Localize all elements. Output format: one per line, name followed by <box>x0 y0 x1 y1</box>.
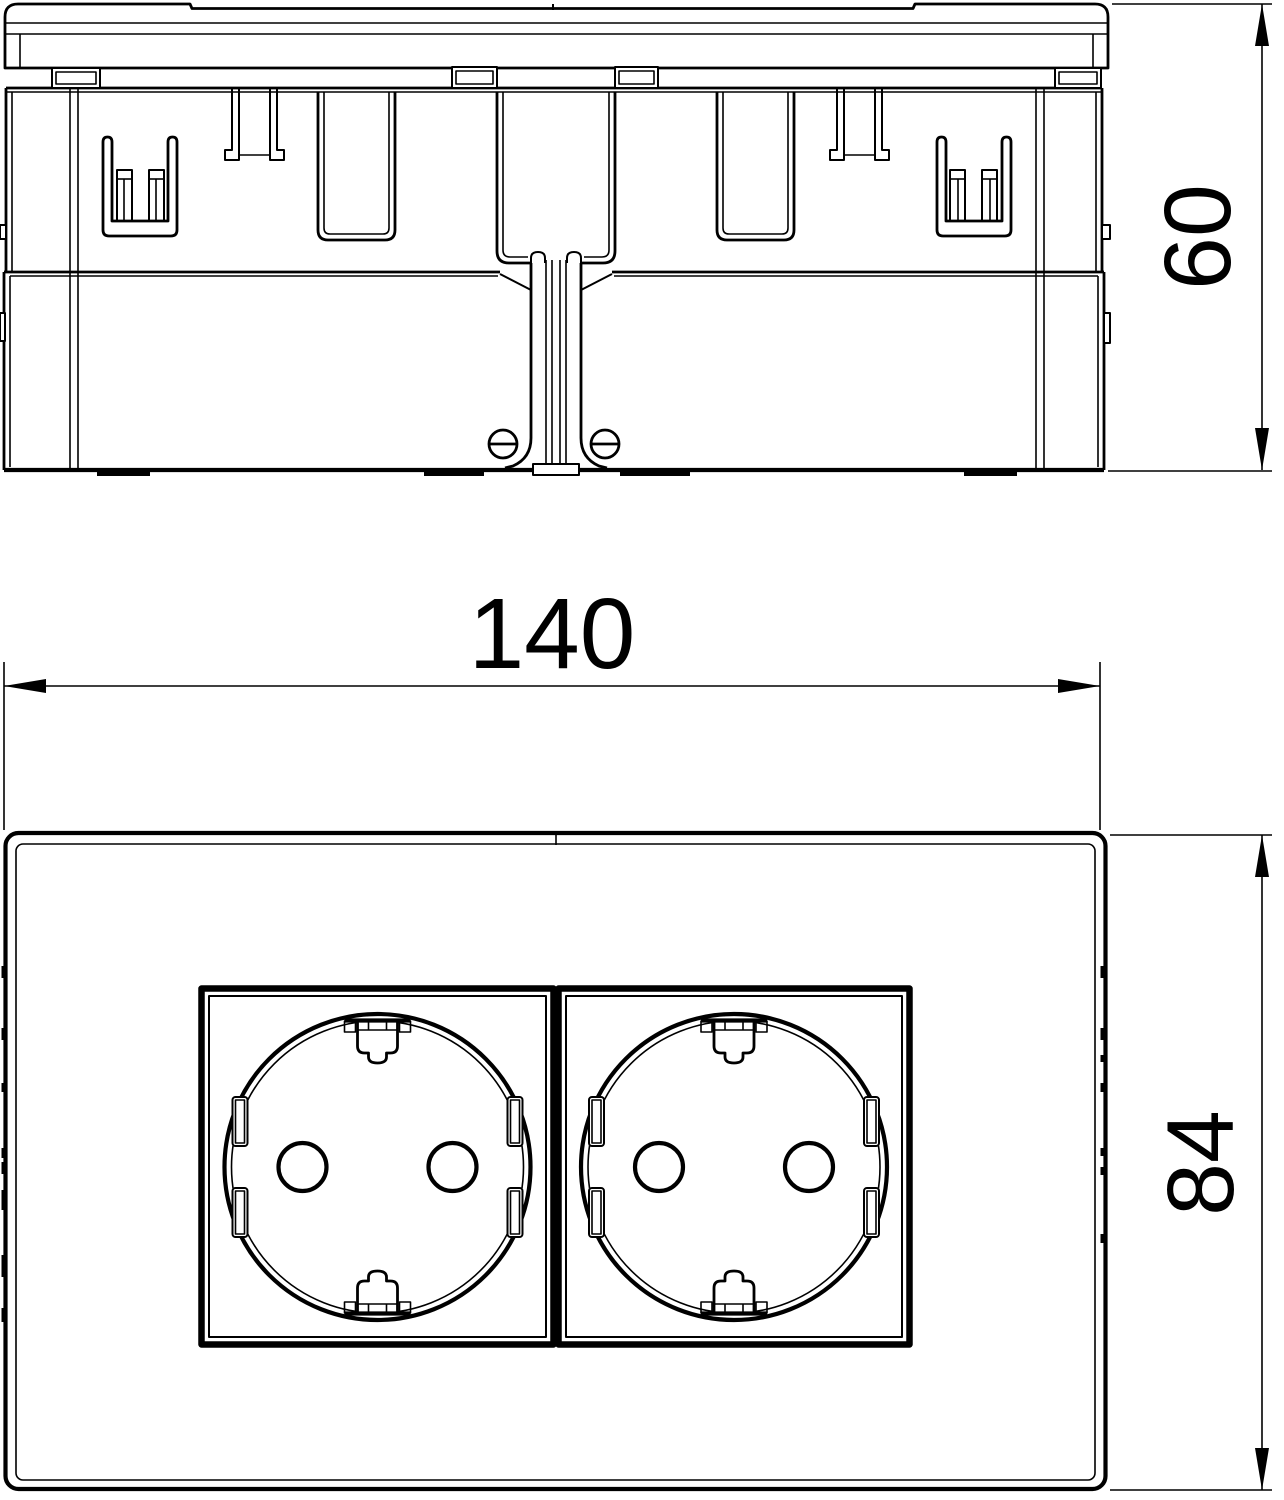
screw-head-right-icon <box>590 430 620 458</box>
center-channel <box>500 260 612 468</box>
arrow-left-icon <box>4 679 46 693</box>
cover-lid <box>5 4 1108 68</box>
dimension-drawing: 60 <box>0 0 1284 1500</box>
channel-end-cap <box>533 464 579 475</box>
schuko-socket-left-icon <box>225 1014 531 1320</box>
arrow-right-icon <box>1058 679 1100 693</box>
lid-latch-tabs <box>52 67 1101 88</box>
dimension-depth: 60 <box>1108 4 1272 471</box>
center-slot <box>497 92 615 263</box>
claw-clip-left <box>103 137 177 236</box>
foot-mid-left <box>424 470 484 476</box>
claw-clip-right <box>937 137 1011 236</box>
front-view <box>4 833 1106 1489</box>
screw-head-left-icon <box>488 430 518 458</box>
arrow-up-icon <box>1255 835 1269 877</box>
technical-drawing-page: 60 <box>0 0 1284 1500</box>
device-body-lower <box>0 272 1110 476</box>
dimension-depth-label: 60 <box>1145 184 1251 290</box>
device-body-upper <box>0 88 1110 468</box>
foot-left <box>97 470 150 476</box>
dimension-width: 140 <box>4 578 1100 830</box>
schuko-socket-right-icon <box>581 1014 887 1320</box>
arrow-down-icon <box>1255 1448 1269 1490</box>
dimension-front-height: 84 <box>1110 835 1272 1490</box>
arrow-down-icon <box>1255 428 1269 470</box>
dimension-front-height-label: 84 <box>1148 1110 1254 1216</box>
arrow-up-icon <box>1255 4 1269 46</box>
guide-slot-left <box>318 92 395 240</box>
guide-slot-right <box>717 92 794 240</box>
foot-right <box>964 470 1017 476</box>
side-view <box>0 4 1110 476</box>
foot-mid-right <box>620 470 690 476</box>
latch-hook-right <box>830 88 889 160</box>
latch-hook-left <box>225 88 284 160</box>
dimension-width-label: 140 <box>469 578 636 690</box>
